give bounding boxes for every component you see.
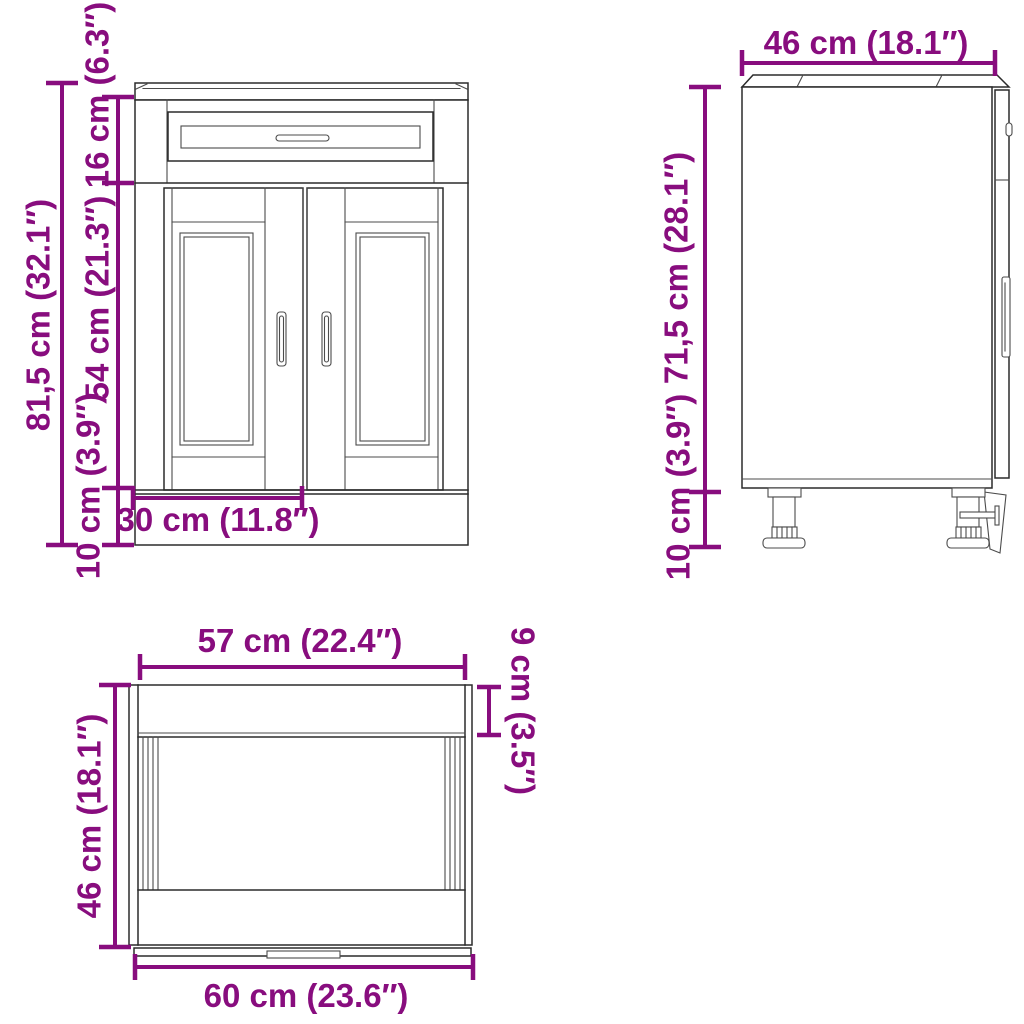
left-door-panel (180, 233, 253, 445)
top-view (129, 685, 472, 958)
top-total-width-label: 60 cm (23.6″) (204, 977, 409, 1014)
side-front-foot (763, 488, 805, 548)
front-drawer-height-label: 16 cm (6.3″) (79, 2, 116, 188)
cabinet-dimension-drawing: 81,5 cm (32.1″) 16 cm (6.3″) 54 cm (21.3… (0, 0, 1024, 1024)
front-total-height-label: 81,5 cm (32.1″) (20, 199, 57, 431)
front-drawer (168, 112, 433, 161)
side-carcass (742, 87, 992, 488)
front-right-door (307, 188, 443, 490)
dimension-diagram-page: 81,5 cm (32.1″) 16 cm (6.3″) 54 cm (21.3… (0, 0, 1024, 1024)
front-plinth-height-label: 10 cm (3.9″) (70, 393, 107, 579)
front-door-width-label: 30 cm (11.8″) (117, 501, 320, 538)
side-leg-height-label: 10 cm (3.9″) (660, 394, 697, 580)
front-view (135, 83, 468, 545)
top-depth-label: 46 cm (18.1″) (71, 714, 108, 919)
side-view (742, 75, 1012, 553)
front-top-rim (135, 83, 468, 100)
top-door-handle (267, 951, 340, 958)
front-left-door (164, 188, 303, 490)
left-door-handle (277, 312, 286, 366)
top-inner-width-label: 57 cm (22.4″) (198, 622, 403, 659)
right-door-panel (356, 233, 429, 445)
side-handle-profile (1002, 277, 1010, 357)
side-body-height-label: 71,5 cm (28.1″) (658, 152, 695, 384)
side-top-face (742, 75, 1009, 87)
right-door-handle (322, 312, 331, 366)
top-front-rail-depth-label: 9 cm (3.5″) (505, 627, 542, 795)
side-knob (1006, 123, 1012, 136)
drawer-handle (276, 135, 329, 141)
top-door-strip (134, 948, 471, 958)
side-depth-label: 46 cm (18.1″) (764, 24, 969, 61)
top-carcass (129, 685, 472, 945)
front-door-height-label: 54 cm (21.3″) (79, 196, 116, 401)
side-door-profile (995, 90, 1012, 478)
